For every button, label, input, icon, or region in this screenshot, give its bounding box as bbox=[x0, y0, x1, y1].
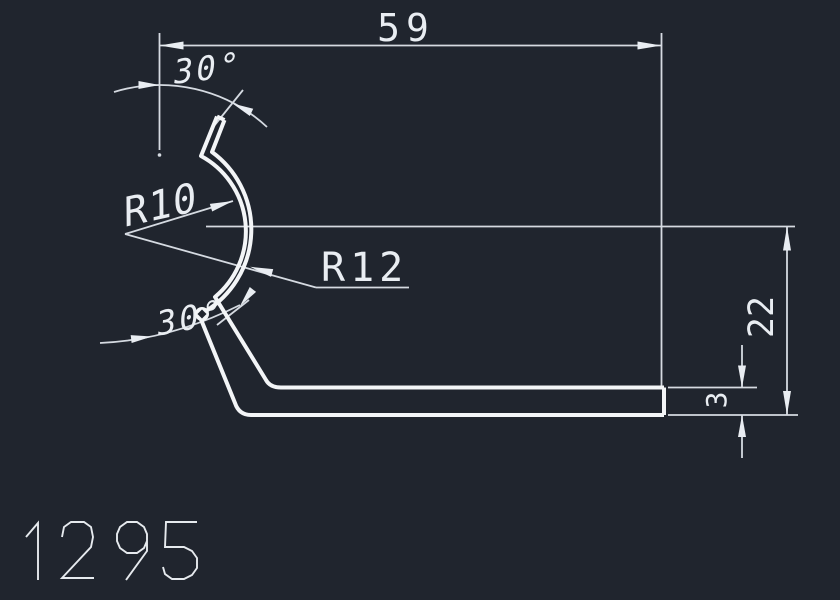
thickness-dim-text: 3 bbox=[700, 392, 733, 409]
angle-top-arrow-left bbox=[139, 81, 160, 89]
thickness-arrow-upper bbox=[738, 366, 746, 388]
height-dim-text: 22 bbox=[742, 296, 782, 338]
radius-inner-text: R10 bbox=[124, 172, 198, 237]
extension-line-dot bbox=[158, 153, 162, 157]
glyph-9 bbox=[117, 522, 147, 580]
technical-drawing: 59 30° R10 R12 30° 22 3 1295 bbox=[0, 0, 840, 600]
thickness-arrow-lower bbox=[738, 415, 746, 437]
height-arrow-bottom bbox=[783, 391, 791, 415]
bend-node-marker bbox=[195, 307, 209, 321]
glyph-5 bbox=[163, 522, 197, 579]
drawing-number-glyphs bbox=[26, 522, 197, 580]
dimension-texts: 59 30° R10 R12 30° 22 3 bbox=[124, 6, 782, 408]
cad-canvas: 59 30° R10 R12 30° 22 3 1295 bbox=[0, 0, 840, 600]
profile-edge-outer bbox=[200, 120, 664, 415]
radius-outer-text: R12 bbox=[321, 245, 408, 291]
width-arrow-left bbox=[160, 42, 184, 50]
profile-outline bbox=[200, 117, 664, 416]
dimension-lines bbox=[100, 33, 798, 458]
width-dim-text: 59 bbox=[377, 6, 435, 50]
glyph-1 bbox=[26, 523, 38, 580]
height-arrow-top bbox=[783, 227, 791, 251]
glyph-2 bbox=[62, 522, 94, 578]
radius-inner-arrow bbox=[210, 197, 234, 211]
profile-edge-inner bbox=[201, 117, 664, 388]
angle-top-arc bbox=[114, 85, 267, 127]
angle-top-text: 30° bbox=[171, 44, 244, 92]
radius-outer-leader bbox=[125, 234, 316, 288]
width-arrow-right bbox=[638, 42, 662, 50]
